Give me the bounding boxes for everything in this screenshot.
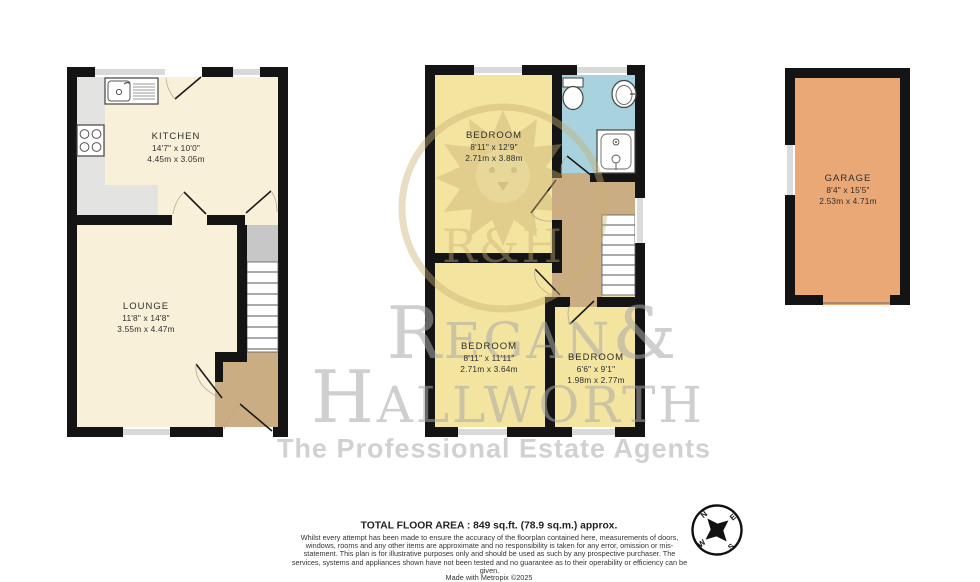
room-dimensions-ft: 6'6" x 9'1" <box>567 364 624 375</box>
room-label-bedroom1: BEDROOM 8'11" x 12'9" 2.71m x 3.88m <box>465 130 522 164</box>
basin-icon <box>612 81 636 108</box>
room-label-lounge: LOUNGE 11'8" x 14'8" 3.55m x 4.47m <box>117 301 174 335</box>
hob-icon <box>77 125 104 156</box>
garage-door-opening <box>823 295 890 305</box>
room-dimensions-m: 3.55m x 4.47m <box>117 324 174 335</box>
room-label-garage: GARAGE 8'4" x 15'5" 2.53m x 4.71m <box>819 173 876 207</box>
floorplan-page: N E S W R&H Regan& Hallworth The Profess… <box>0 0 980 582</box>
disclaimer-text: Whilst every attempt has been made to en… <box>291 534 688 575</box>
room-name: BEDROOM <box>567 352 624 364</box>
room-dimensions-m: 1.98m x 2.77m <box>567 375 624 386</box>
room-label-bedroom3: BEDROOM 6'6" x 9'1" 1.98m x 2.77m <box>567 352 624 386</box>
room-label-kitchen: KITCHEN 14'7" x 10'0" 4.45m x 3.05m <box>147 131 204 165</box>
watermark-tagline: The Professional Estate Agents <box>277 434 711 465</box>
sink-icon <box>105 78 158 104</box>
window <box>785 145 795 195</box>
ground-floor-plan <box>67 67 288 437</box>
room-name: LOUNGE <box>117 301 174 313</box>
room-dimensions-m: 2.71m x 3.88m <box>465 153 522 164</box>
credit-text: Made with Metropix ©2025 <box>446 573 533 582</box>
room-name: BEDROOM <box>465 130 522 142</box>
room-name: GARAGE <box>819 173 876 185</box>
room-dimensions-ft: 8'11" x 12'9" <box>465 142 522 153</box>
compass-icon: N E S W <box>682 495 752 566</box>
room-label-bedroom2: BEDROOM 8'11" x 11'11" 2.71m x 3.64m <box>460 341 517 375</box>
room-name: BEDROOM <box>460 341 517 353</box>
stairs-icon <box>602 215 635 295</box>
room-dimensions-ft: 8'4" x 15'5" <box>819 185 876 196</box>
front-door-opening <box>223 427 273 437</box>
room-dimensions-ft: 8'11" x 11'11" <box>460 353 517 364</box>
room-dimensions-ft: 14'7" x 10'0" <box>147 143 204 154</box>
room-dimensions-m: 2.71m x 3.64m <box>460 364 517 375</box>
bath-icon <box>597 130 635 173</box>
room-dimensions-m: 2.53m x 4.71m <box>819 196 876 207</box>
stairs-icon <box>247 262 278 352</box>
total-floor-area: TOTAL FLOOR AREA : 849 sq.ft. (78.9 sq.m… <box>361 521 618 532</box>
toilet-icon <box>563 78 583 110</box>
back-door-opening <box>165 67 202 77</box>
room-dimensions-ft: 11'8" x 14'8" <box>117 313 174 324</box>
room-dimensions-m: 4.45m x 3.05m <box>147 154 204 165</box>
room-name: KITCHEN <box>147 131 204 143</box>
